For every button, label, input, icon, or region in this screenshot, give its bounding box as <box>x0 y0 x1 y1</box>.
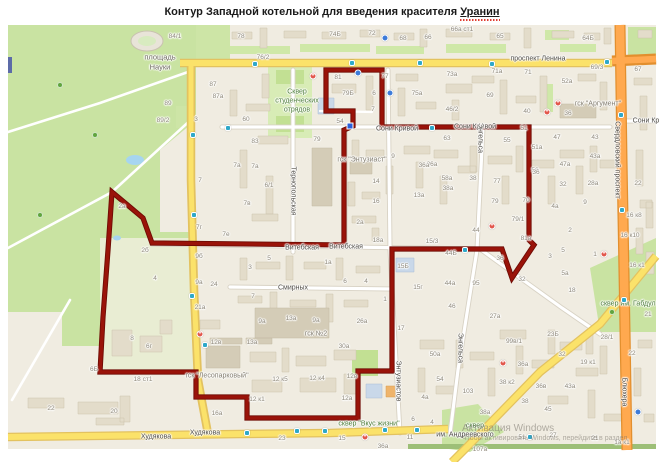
pharmacy-icon[interactable]: + <box>197 331 204 338</box>
tree-icon[interactable] <box>609 309 615 315</box>
tree-icon[interactable] <box>92 132 98 138</box>
bus-icon[interactable] <box>252 61 258 67</box>
building-number-label: 69/3 <box>591 65 604 72</box>
building-number-label: 43а <box>590 154 601 161</box>
building-number-label: 38 <box>469 176 476 183</box>
building-number-label: 12 к4 <box>309 376 325 383</box>
building-number-label: 12в <box>211 340 222 347</box>
building-number-label: 3 <box>548 254 552 261</box>
map-canvas[interactable]: проспект ЛенинаСони КривойСони КривойСон… <box>0 0 664 462</box>
building-number-label: 7 <box>198 178 202 185</box>
building-number-label: 38а <box>443 186 454 193</box>
street-name-label: Сони Кривой <box>376 126 418 133</box>
building-number-label: 107а <box>473 447 487 454</box>
building-number-label: 2б <box>141 248 148 255</box>
building-number-label: 32 <box>518 277 525 284</box>
building-number-label: 81а <box>521 236 532 243</box>
street-name-label: Смирных <box>278 285 308 292</box>
building-number-label: 24 <box>210 282 217 289</box>
building-number-label: 38 к2 <box>499 380 515 387</box>
building-number-label: 4 <box>430 420 434 427</box>
bus-icon[interactable] <box>189 293 195 299</box>
street-name-label: Сони Кривой <box>454 124 496 131</box>
poi-icon[interactable] <box>382 35 389 42</box>
building-number-label: 6 <box>343 279 347 286</box>
building-number-label: 1 <box>383 297 387 304</box>
building-number-label: 12 к1 <box>249 397 265 404</box>
building-number-label: 14 <box>372 179 379 186</box>
building-number-label: 9б <box>195 254 202 261</box>
building-number-label: 30а <box>339 344 350 351</box>
building-number-label: 52а <box>562 79 573 86</box>
building-number-label: 2 <box>568 228 572 235</box>
building-number-label: 5а <box>561 271 568 278</box>
building-number-label: 4а <box>551 204 558 211</box>
building-number-label: 9а <box>258 319 265 326</box>
building-number-label: 2а <box>118 204 125 211</box>
building-number-label: 64Б <box>582 36 594 43</box>
bus-icon[interactable] <box>619 207 625 213</box>
building-number-label: 9а <box>195 280 202 287</box>
building-number-label: 83 <box>251 139 258 146</box>
building-number-label: 12в <box>347 374 358 381</box>
pharmacy-icon[interactable]: + <box>489 223 496 230</box>
building-number-label: 6 <box>372 91 376 98</box>
building-number-label: 3 <box>194 117 198 124</box>
bus-icon[interactable] <box>382 427 388 433</box>
building-number-label: 89/2 <box>157 118 170 125</box>
building-number-label: 16 <box>372 199 379 206</box>
building-number-label: 27 <box>549 433 556 440</box>
bus-icon[interactable] <box>527 434 533 440</box>
building-number-label: 18а <box>373 238 384 245</box>
building-number-label: 45 <box>544 407 551 414</box>
building-number-label: 36а <box>518 362 529 369</box>
building-number-label: 43 <box>591 135 598 142</box>
building-number-label: 46 <box>448 304 455 311</box>
building-number-label: 38 <box>521 399 528 406</box>
building-number-label: 21 <box>591 436 598 443</box>
building-number-label: 1 <box>593 252 597 259</box>
street-name-label: проспект Ленина <box>510 56 565 63</box>
bus-icon[interactable] <box>294 428 300 434</box>
building-number-label: 75а <box>412 91 423 98</box>
building-number-label: 78 <box>237 34 244 41</box>
building-number-label: 7а <box>251 164 258 171</box>
building-number-label: 77 <box>493 179 500 186</box>
stadium <box>131 31 163 51</box>
building-number-label: 63 <box>443 136 450 143</box>
bus-icon[interactable] <box>621 297 627 303</box>
street-name-label: Энтузиастов <box>395 361 402 402</box>
page: Контур Западной котельной для введения к… <box>0 0 664 462</box>
place-name-label: студенческих <box>275 98 318 105</box>
bus-icon[interactable] <box>349 60 355 66</box>
building-number-label: 79 <box>313 137 320 144</box>
bus-icon[interactable] <box>202 342 208 348</box>
tree-icon[interactable] <box>57 82 63 88</box>
poi-icon[interactable] <box>635 409 642 416</box>
building-number-label: 8 <box>130 336 134 343</box>
street-name-label: Энгельса <box>477 123 484 153</box>
pharmacy-icon[interactable]: + <box>362 434 369 441</box>
building-number-label: 47 <box>553 135 560 142</box>
building-number-label: 15 <box>338 436 345 443</box>
building-number-label: 47а <box>560 162 571 169</box>
building-number-label: 6/1 <box>264 183 273 190</box>
bus-icon[interactable] <box>417 60 423 66</box>
building-number-label: 87а <box>213 94 224 101</box>
building-number-label: 22 <box>628 351 635 358</box>
building-number-label: 21а <box>195 305 206 312</box>
map-base <box>0 0 664 462</box>
building-number-label: 36а <box>378 444 389 451</box>
building-number-label: 16 к8 <box>626 213 642 220</box>
building-number-label: 16 к10 <box>620 233 639 240</box>
building-number-label: 28/1 <box>601 335 614 342</box>
pharmacy-icon[interactable]: + <box>544 109 551 116</box>
building-number-label: 23 <box>278 436 285 443</box>
building-number-label: 36 <box>532 170 539 177</box>
building-number-label: 9 <box>583 200 587 207</box>
building-number-label: 87 <box>209 82 216 89</box>
poi-icon[interactable] <box>355 70 362 77</box>
street-name-label: Энгельса <box>457 333 464 363</box>
building-number-label: 4 <box>364 279 368 286</box>
building-number-label: 5 <box>267 256 271 263</box>
building-number-label: 32 <box>559 182 566 189</box>
place-name-label: сквер им. Габдул <box>600 301 655 308</box>
place-name-label: Науки <box>150 63 171 71</box>
street-name-label: Худякова <box>190 430 220 437</box>
place-name-label: гск "Энтузиаст" <box>337 157 386 164</box>
building-number-label: 36в <box>536 384 547 391</box>
building-number-label: 20 <box>110 409 117 416</box>
building-number-label: 19 к1 <box>580 360 596 367</box>
building-number-label: 7а <box>233 163 240 170</box>
building-number-label: 16а <box>212 411 223 418</box>
building-number-label: 76/2 <box>257 55 270 62</box>
building-number-label: 65 <box>496 34 503 41</box>
building-number-label: 13а <box>247 340 258 347</box>
building-number-label: 84/1 <box>169 34 182 41</box>
building-number-label: 44 <box>472 228 479 235</box>
building-number-label: 36а <box>419 163 430 170</box>
building-number-label: 13а <box>414 193 425 200</box>
building-number-label: 1а к1 <box>614 440 630 447</box>
building-number-label: 7г <box>196 225 202 232</box>
building-number-label: 79 <box>491 199 498 206</box>
bus-icon[interactable] <box>489 61 495 67</box>
building-number-label: 99в/1 <box>506 339 522 346</box>
building-number-label: 79/1 <box>512 217 525 224</box>
pharmacy-icon[interactable]: + <box>601 251 608 258</box>
building-number-label: 7в <box>243 201 250 208</box>
building-number-label: 79Б <box>342 91 354 98</box>
place-name-label: сквер <box>466 423 484 430</box>
building-number-label: 22 <box>47 406 54 413</box>
building-number-label: 38а <box>480 410 491 417</box>
building-number-label: 50а <box>430 352 441 359</box>
place-name-label: гск "Лесопарковый" <box>185 373 248 380</box>
building-number-label: 15Б <box>397 264 409 271</box>
bus-icon[interactable] <box>244 430 250 436</box>
bus-icon[interactable] <box>225 125 231 131</box>
building-number-label: 1а <box>324 260 331 267</box>
building-number-label: 9а <box>312 318 319 325</box>
building-number-label: 5 <box>561 248 565 255</box>
bus-icon[interactable] <box>322 428 328 434</box>
place-name-label: Сквер <box>287 89 307 96</box>
street-name-label: Витебская <box>285 245 319 252</box>
building-number-label: 4а <box>421 395 428 402</box>
building-number-label: 16 к1 <box>629 263 645 270</box>
building-number-label: 3 <box>248 265 252 272</box>
building-number-label: 15г <box>413 285 423 292</box>
bus-icon[interactable] <box>429 125 435 131</box>
place-name-label: отрядов <box>284 107 310 114</box>
building-number-label: 21 <box>644 312 651 319</box>
building-number-label: 36 <box>496 256 503 263</box>
building-number-label: 69 <box>486 93 493 100</box>
building-number-label: 44а <box>445 281 456 288</box>
building-number-label: 55 <box>503 138 510 145</box>
bus-icon[interactable] <box>618 112 624 118</box>
building-number-label: 54 <box>336 119 343 126</box>
building-number-label: 26а <box>357 319 368 326</box>
building-number-label: 44Б <box>445 251 457 258</box>
building-number-label: 32 <box>558 352 565 359</box>
street-name-label: Худякова <box>141 434 171 441</box>
bus-icon[interactable] <box>462 247 468 253</box>
building-number-label: 23Б <box>547 332 559 339</box>
building-number-label: 77 <box>381 74 388 81</box>
building-number-label: 18 <box>568 288 575 295</box>
place-name-label: гск №2 <box>305 331 327 338</box>
pharmacy-icon[interactable]: + <box>500 360 507 367</box>
building-number-label: 51 <box>520 126 527 133</box>
street-name-label: Сони Кр <box>633 118 660 125</box>
tree-icon[interactable] <box>37 212 43 218</box>
building-number-label: 36 <box>564 111 571 118</box>
building-number-label: 68 <box>399 36 406 43</box>
building-number-label: 66а ст1 <box>451 27 474 34</box>
contour-point-marker[interactable] <box>347 123 354 130</box>
building-number-label: 54 <box>436 377 443 384</box>
building-number-label: 11 <box>407 435 414 442</box>
street-name-label: Свердловский проспект <box>614 121 621 199</box>
street-name-label: Витебская <box>329 244 363 251</box>
building-number-label: 22 <box>634 181 641 188</box>
building-number-label: 17 <box>397 326 404 333</box>
building-number-label: 73а <box>447 72 458 79</box>
building-number-label: 58а <box>442 176 453 183</box>
pharmacy-icon[interactable]: + <box>310 73 317 80</box>
building-number-label: 12 к5 <box>272 377 288 384</box>
building-number-label: 71а <box>492 69 503 76</box>
street-name-label: им. Андреевского <box>436 432 493 439</box>
building-number-label: 40 <box>523 109 530 116</box>
building-number-label: 28а <box>588 181 599 188</box>
building-number-label: 7 <box>371 107 375 114</box>
place-name-label: площадь <box>144 53 175 61</box>
building-number-label: 4 <box>153 276 157 283</box>
building-number-label: 103 <box>463 389 474 396</box>
place-name-label: сквер "Вкус жизни" <box>338 421 399 428</box>
building-number-label: 27а <box>490 314 501 321</box>
place-name-label: гск "Аргумент" <box>575 101 621 108</box>
building-number-label: 81 <box>334 75 341 82</box>
building-number-label: 7 <box>251 294 255 301</box>
building-number-label: 67 <box>634 67 641 74</box>
poi-icon[interactable] <box>387 90 394 97</box>
building-number-label: 15/3 <box>426 239 439 246</box>
building-number-label: 95 <box>472 281 479 288</box>
pharmacy-icon[interactable]: + <box>555 100 562 107</box>
bus-icon[interactable] <box>414 427 420 433</box>
building-number-label: 12а <box>342 396 353 403</box>
building-number-label: 60 <box>242 117 249 124</box>
building-number-label: 6 <box>411 417 415 424</box>
building-number-label: 70 <box>522 198 529 205</box>
building-number-label: 18 ст1 <box>134 377 153 384</box>
street-name-label: Тернопольская <box>290 166 297 215</box>
building-number-label: 66 <box>424 35 431 42</box>
building-number-label: 72 <box>368 31 375 38</box>
bus-icon[interactable] <box>604 59 610 65</box>
building-number-label: 71 <box>524 70 531 77</box>
building-number-label: 2а <box>356 220 363 227</box>
building-number-label: 43а <box>565 384 576 391</box>
building-number-label: 6Б <box>90 367 98 374</box>
building-number-label: 51 <box>518 435 525 442</box>
building-number-label: 89 <box>164 101 171 108</box>
building-number-label: 7е <box>222 232 229 239</box>
building-number-label: 6г <box>146 344 152 351</box>
building-number-label: 9 <box>391 154 395 161</box>
street-name-label: Блюхера <box>621 378 628 407</box>
building-number-label: 74Б <box>329 32 341 39</box>
building-number-label: 46/2 <box>446 107 459 114</box>
building-number-label: 13а <box>286 316 297 323</box>
bus-icon[interactable] <box>190 132 196 138</box>
bus-icon[interactable] <box>191 212 197 218</box>
building-number-label: 51а <box>532 145 543 152</box>
